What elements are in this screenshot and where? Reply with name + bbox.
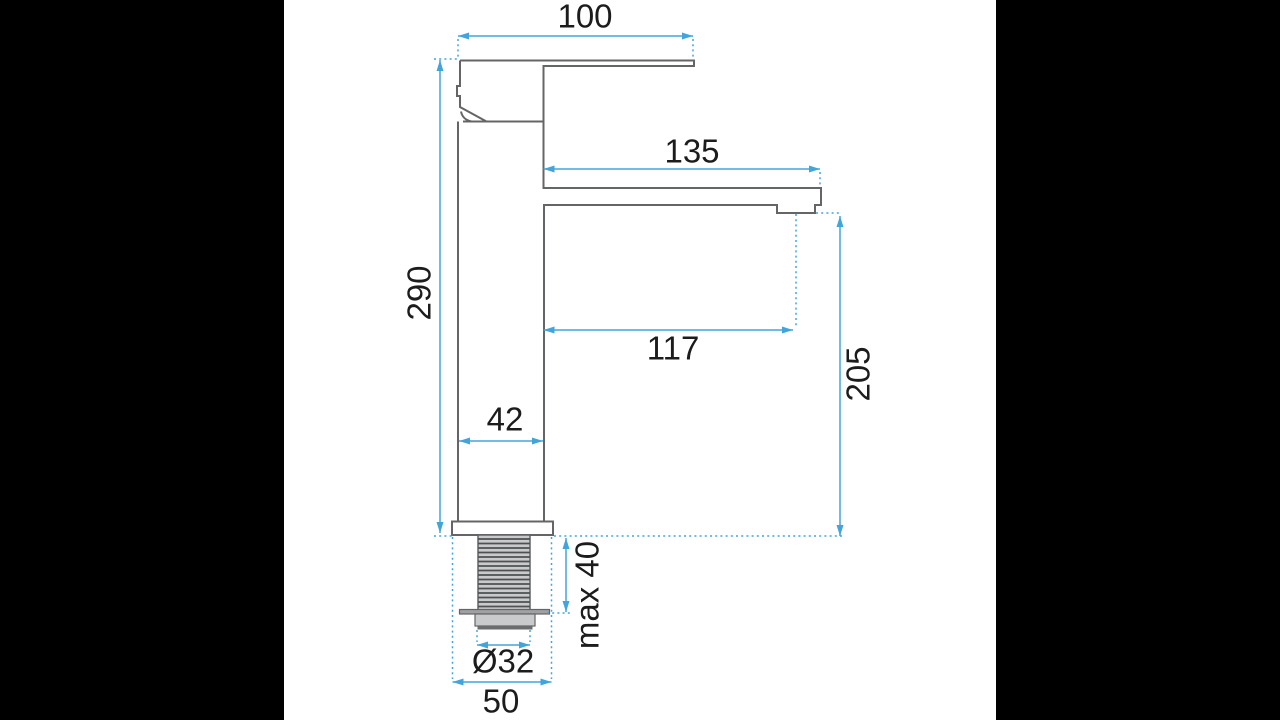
dim-label-spout-height: 205 [842,346,875,401]
faucet-outline [452,61,821,536]
threaded-shank [460,535,550,630]
dim-label-max-deck-thickness: max 40 [571,541,604,649]
dim-290 [437,60,444,533]
dim-label-base-width: 50 [483,685,520,718]
letterbox-bar-right [996,0,1280,720]
screenshot-stage: 100 135 290 117 205 42 max 40 Ø32 50 [0,0,1280,720]
mounting-nut [475,614,535,626]
dim-label-hole-diameter: Ø32 [472,645,534,678]
nut-collar [478,626,533,630]
dim-label-handle-width: 100 [557,0,612,33]
dim-label-spout-reach: 117 [647,332,700,365]
base-plate [452,522,553,536]
dim-label-body-width: 42 [487,403,524,436]
washer [460,610,550,615]
dim-label-spout-top-reach: 135 [664,135,719,168]
dim-42 [459,438,543,445]
dim-label-total-height: 290 [403,265,436,320]
letterbox-bar-left [0,0,284,720]
